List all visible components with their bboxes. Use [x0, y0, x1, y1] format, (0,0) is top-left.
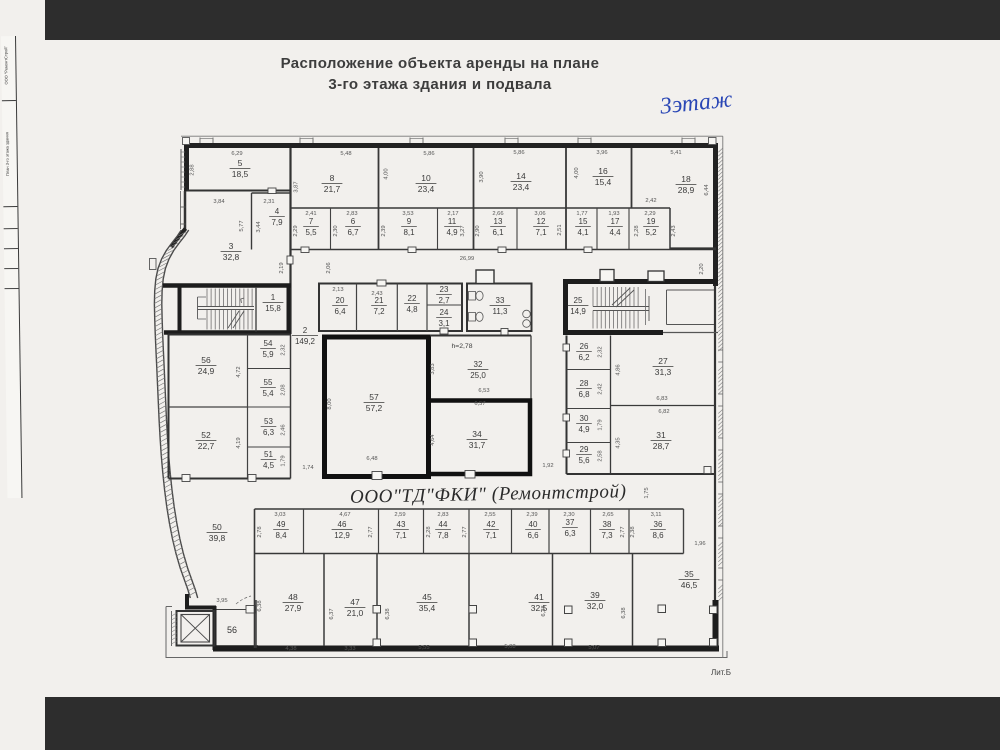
svg-text:2,29: 2,29	[644, 211, 655, 217]
svg-text:2,30: 2,30	[333, 225, 339, 236]
svg-text:8,6: 8,6	[652, 531, 664, 540]
svg-text:5,55: 5,55	[418, 645, 429, 651]
svg-text:36: 36	[654, 520, 663, 529]
svg-text:6,44: 6,44	[704, 184, 710, 196]
svg-text:42: 42	[487, 520, 496, 529]
svg-text:28,7: 28,7	[653, 441, 670, 451]
svg-text:21: 21	[375, 296, 384, 305]
svg-text:6,6: 6,6	[527, 531, 539, 540]
svg-text:5,9: 5,9	[262, 350, 274, 359]
svg-text:3,11: 3,11	[651, 512, 662, 518]
svg-text:1,75: 1,75	[644, 487, 650, 498]
svg-text:7,3: 7,3	[601, 531, 613, 540]
svg-text:2,38: 2,38	[630, 526, 636, 537]
svg-text:49: 49	[277, 520, 286, 529]
svg-text:5,86: 5,86	[423, 151, 434, 157]
svg-text:3: 3	[229, 241, 234, 251]
svg-text:5,6: 5,6	[578, 456, 590, 465]
svg-text:6,3: 6,3	[564, 529, 576, 538]
svg-text:18,5: 18,5	[232, 169, 249, 179]
svg-text:3,87: 3,87	[294, 181, 300, 192]
svg-text:25: 25	[574, 296, 583, 305]
svg-text:2,83: 2,83	[437, 512, 448, 518]
svg-text:12,9: 12,9	[334, 531, 350, 540]
svg-text:2,65: 2,65	[602, 512, 613, 518]
svg-text:15: 15	[579, 217, 588, 226]
svg-text:3,84: 3,84	[213, 199, 225, 205]
svg-text:8,00: 8,00	[327, 398, 333, 409]
svg-text:1,77: 1,77	[576, 211, 587, 217]
svg-text:2,42: 2,42	[598, 383, 604, 394]
svg-text:6,38: 6,38	[385, 608, 391, 619]
svg-text:4,67: 4,67	[339, 512, 350, 518]
svg-text:39: 39	[590, 590, 600, 600]
svg-text:27,9: 27,9	[285, 603, 302, 613]
svg-text:44: 44	[439, 520, 448, 529]
svg-text:2,43: 2,43	[371, 291, 382, 297]
svg-text:2,83: 2,83	[346, 211, 357, 217]
svg-text:2,90: 2,90	[475, 225, 481, 236]
svg-text:31,3: 31,3	[655, 367, 672, 377]
svg-text:39,8: 39,8	[209, 533, 226, 543]
svg-text:1,96: 1,96	[694, 541, 705, 547]
svg-text:2,30: 2,30	[563, 512, 574, 518]
svg-text:15,8: 15,8	[265, 304, 281, 313]
svg-text:55: 55	[264, 378, 273, 387]
svg-text:50: 50	[212, 522, 222, 532]
svg-text:4,64: 4,64	[430, 434, 436, 446]
svg-text:26,99: 26,99	[460, 256, 475, 262]
svg-text:35,4: 35,4	[419, 603, 436, 613]
svg-text:38: 38	[603, 520, 612, 529]
svg-text:11: 11	[448, 217, 457, 226]
svg-text:16: 16	[598, 166, 608, 176]
svg-text:26: 26	[580, 342, 589, 351]
svg-text:7,1: 7,1	[395, 531, 407, 540]
svg-text:23: 23	[440, 285, 449, 294]
svg-text:6,83: 6,83	[656, 396, 667, 402]
svg-text:4,8: 4,8	[406, 305, 418, 314]
svg-text:29: 29	[580, 445, 589, 454]
svg-text:6,38: 6,38	[621, 607, 627, 618]
svg-text:2,7: 2,7	[438, 296, 450, 305]
svg-text:8: 8	[330, 173, 335, 183]
svg-text:6,4: 6,4	[334, 307, 346, 316]
svg-text:4,1: 4,1	[577, 228, 589, 237]
svg-text:32,0: 32,0	[587, 601, 604, 611]
svg-text:5,48: 5,48	[340, 151, 351, 157]
svg-text:6,38: 6,38	[541, 605, 547, 616]
svg-text:6,2: 6,2	[578, 353, 590, 362]
svg-text:1,74: 1,74	[302, 465, 314, 471]
svg-text:30: 30	[580, 414, 589, 423]
svg-text:10: 10	[421, 173, 431, 183]
svg-text:45: 45	[422, 592, 432, 602]
svg-text:3,83: 3,83	[430, 363, 436, 374]
svg-text:19: 19	[647, 217, 656, 226]
svg-text:35: 35	[684, 569, 694, 579]
svg-text:2,66: 2,66	[492, 211, 503, 217]
svg-text:2,55: 2,55	[484, 512, 495, 518]
svg-text:6,1: 6,1	[492, 228, 504, 237]
svg-text:5,41: 5,41	[670, 150, 681, 156]
svg-text:11,3: 11,3	[493, 307, 509, 316]
svg-text:28,9: 28,9	[678, 185, 695, 195]
svg-text:2,29: 2,29	[293, 225, 299, 236]
svg-text:2,41: 2,41	[305, 211, 316, 217]
svg-text:53: 53	[264, 417, 273, 426]
svg-text:2,28: 2,28	[634, 225, 640, 236]
svg-text:46: 46	[338, 520, 347, 529]
svg-text:3,1: 3,1	[438, 319, 450, 328]
svg-text:1,93: 1,93	[608, 211, 619, 217]
svg-text:2,19: 2,19	[279, 262, 285, 273]
svg-text:5,4: 5,4	[262, 389, 274, 398]
svg-text:15,4: 15,4	[595, 177, 612, 187]
svg-text:4,19: 4,19	[236, 437, 242, 448]
svg-text:48: 48	[288, 592, 298, 602]
svg-text:2,42: 2,42	[645, 198, 656, 204]
svg-text:4,72: 4,72	[236, 366, 242, 377]
svg-text:56: 56	[227, 625, 237, 635]
svg-text:4,00: 4,00	[574, 167, 580, 178]
svg-text:2,88: 2,88	[190, 164, 196, 175]
svg-text:4,5: 4,5	[263, 461, 275, 470]
svg-text:57: 57	[369, 392, 379, 402]
svg-text:25,0: 25,0	[470, 371, 486, 380]
svg-text:5,2: 5,2	[645, 228, 657, 237]
svg-text:6,38: 6,38	[257, 600, 263, 611]
svg-text:40: 40	[529, 520, 538, 529]
svg-text:1,79: 1,79	[598, 419, 604, 430]
svg-text:31,7: 31,7	[469, 440, 486, 450]
svg-text:2,32: 2,32	[281, 344, 287, 355]
svg-text:5,08: 5,08	[504, 644, 515, 650]
svg-text:2,32: 2,32	[598, 346, 604, 357]
svg-text:13: 13	[494, 217, 503, 226]
svg-text:24: 24	[440, 308, 449, 317]
svg-text:2,13: 2,13	[332, 287, 343, 293]
svg-text:14,9: 14,9	[570, 307, 586, 316]
svg-text:23,4: 23,4	[418, 184, 435, 194]
svg-text:3,90: 3,90	[479, 171, 485, 182]
svg-text:1: 1	[271, 293, 276, 302]
svg-text:7,2: 7,2	[373, 307, 385, 316]
svg-text:6,57: 6,57	[474, 401, 485, 407]
svg-text:3,27: 3,27	[460, 225, 466, 236]
svg-text:3,03: 3,03	[274, 512, 285, 518]
svg-text:33: 33	[496, 296, 505, 305]
svg-text:47: 47	[350, 597, 360, 607]
svg-text:2,77: 2,77	[368, 526, 374, 537]
svg-text:2,77: 2,77	[620, 526, 626, 537]
svg-text:4: 4	[275, 207, 280, 216]
svg-text:2,17: 2,17	[447, 211, 458, 217]
svg-text:2: 2	[303, 326, 308, 335]
svg-text:14: 14	[516, 171, 526, 181]
svg-text:51: 51	[264, 450, 273, 459]
svg-text:8,4: 8,4	[275, 531, 287, 540]
svg-text:6: 6	[351, 217, 356, 226]
svg-text:1,92: 1,92	[542, 463, 553, 469]
svg-text:4,9: 4,9	[578, 425, 590, 434]
svg-text:7: 7	[309, 217, 314, 226]
svg-text:27: 27	[658, 356, 668, 366]
svg-text:4,4: 4,4	[609, 228, 621, 237]
svg-text:24,9: 24,9	[198, 366, 215, 376]
svg-text:7,1: 7,1	[535, 228, 547, 237]
svg-text:31: 31	[656, 430, 666, 440]
svg-text:2,06: 2,06	[326, 262, 332, 273]
svg-text:149,2: 149,2	[295, 337, 316, 346]
svg-text:4,86: 4,86	[616, 364, 622, 375]
svg-text:3,06: 3,06	[534, 211, 545, 217]
svg-text:22: 22	[408, 294, 417, 303]
svg-text:4,35: 4,35	[616, 437, 622, 448]
svg-text:4,00: 4,00	[384, 168, 390, 179]
svg-text:9: 9	[407, 217, 412, 226]
svg-text:2,08: 2,08	[281, 384, 287, 395]
svg-text:2,51: 2,51	[557, 224, 563, 235]
svg-text:5,5: 5,5	[305, 228, 317, 237]
svg-text:2,39: 2,39	[526, 512, 537, 518]
svg-text:5,07: 5,07	[588, 645, 599, 651]
svg-text:37: 37	[566, 518, 575, 527]
svg-text:52: 52	[201, 430, 211, 440]
svg-text:2,46: 2,46	[281, 424, 287, 435]
svg-text:20: 20	[336, 296, 345, 305]
svg-text:18: 18	[681, 174, 691, 184]
svg-text:46,5: 46,5	[681, 580, 698, 590]
svg-text:5: 5	[238, 158, 243, 168]
svg-text:21,0: 21,0	[347, 608, 364, 618]
svg-text:3,95: 3,95	[216, 598, 227, 604]
svg-text:22,7: 22,7	[198, 441, 215, 451]
svg-text:2,28: 2,28	[426, 526, 432, 537]
svg-text:6,7: 6,7	[347, 228, 359, 237]
svg-text:56: 56	[201, 355, 211, 365]
svg-text:6,29: 6,29	[231, 151, 242, 157]
svg-text:4,38: 4,38	[285, 646, 296, 652]
svg-text:6,37: 6,37	[329, 608, 335, 619]
svg-text:34: 34	[472, 429, 482, 439]
svg-text:4,9: 4,9	[446, 228, 458, 237]
svg-text:17: 17	[611, 217, 620, 226]
svg-text:7,8: 7,8	[437, 531, 449, 540]
svg-text:7,9: 7,9	[271, 218, 283, 227]
svg-text:2,78: 2,78	[257, 526, 263, 537]
svg-text:h=2,78: h=2,78	[452, 343, 473, 350]
svg-text:6,48: 6,48	[366, 456, 377, 462]
svg-text:5,86: 5,86	[513, 150, 524, 156]
svg-text:1,79: 1,79	[281, 455, 287, 466]
svg-text:2,58: 2,58	[598, 450, 604, 461]
svg-text:28: 28	[580, 379, 589, 388]
svg-text:3,53: 3,53	[402, 211, 413, 217]
svg-text:12: 12	[537, 217, 546, 226]
svg-text:6,53: 6,53	[478, 388, 489, 394]
svg-text:2,39: 2,39	[381, 225, 387, 236]
svg-text:6,3: 6,3	[263, 428, 275, 437]
svg-text:32: 32	[474, 360, 483, 369]
svg-text:6,82: 6,82	[658, 409, 669, 415]
svg-text:43: 43	[397, 520, 406, 529]
svg-text:3,96: 3,96	[596, 150, 607, 156]
svg-text:7,1: 7,1	[485, 531, 497, 540]
svg-text:54: 54	[264, 339, 273, 348]
svg-text:2,77: 2,77	[462, 526, 468, 537]
svg-text:23,4: 23,4	[513, 182, 530, 192]
svg-text:8,1: 8,1	[403, 228, 415, 237]
svg-text:3,44: 3,44	[256, 221, 262, 233]
svg-text:57,2: 57,2	[366, 403, 383, 413]
svg-text:2,20: 2,20	[699, 263, 705, 274]
svg-text:3,33: 3,33	[344, 646, 355, 652]
svg-text:2,43: 2,43	[671, 225, 677, 236]
svg-text:41: 41	[534, 592, 544, 602]
svg-text:2,31: 2,31	[263, 199, 274, 205]
svg-text:32,8: 32,8	[223, 252, 240, 262]
svg-text:5,77: 5,77	[239, 220, 245, 231]
svg-text:2,59: 2,59	[394, 512, 405, 518]
svg-text:21,7: 21,7	[324, 184, 341, 194]
svg-text:6,8: 6,8	[578, 390, 590, 399]
